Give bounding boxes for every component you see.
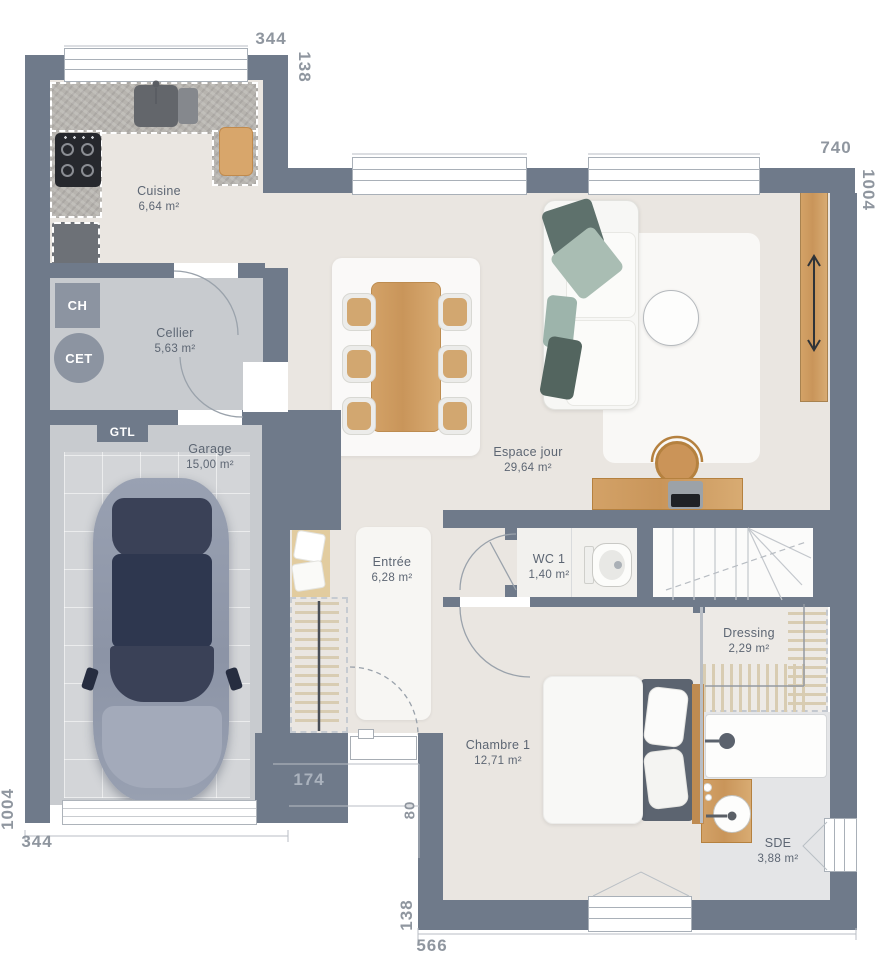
wall-wc-left-stub-top bbox=[505, 528, 517, 540]
window-living-1 bbox=[352, 157, 527, 195]
kitchen-sink bbox=[134, 85, 178, 127]
dim-left-height: 1004 bbox=[0, 788, 18, 830]
kitchen-sink-drainer bbox=[178, 88, 198, 124]
wall-stub-dressing bbox=[693, 602, 705, 613]
stove-burner bbox=[81, 164, 94, 177]
room-area: 15,00 m² bbox=[186, 458, 234, 474]
kitchen-stove bbox=[55, 133, 101, 187]
wall-garage-entree bbox=[262, 530, 290, 733]
wall-chambre-left bbox=[418, 733, 443, 903]
room-name: Espace jour bbox=[493, 444, 562, 461]
dining-chair bbox=[342, 397, 376, 435]
cutting-board bbox=[219, 127, 253, 176]
toilet-seat bbox=[599, 550, 625, 580]
window-kitchen bbox=[64, 48, 248, 82]
laptop-screen bbox=[671, 494, 700, 507]
room-name: WC 1 bbox=[528, 551, 569, 568]
bed-pillow bbox=[643, 686, 690, 748]
entry-cushion bbox=[293, 530, 327, 564]
room-label-entree: Entrée 6,28 m² bbox=[371, 554, 412, 586]
car-hood bbox=[102, 706, 222, 788]
room-label-chambre1: Chambre 1 12,71 m² bbox=[466, 737, 531, 769]
dining-table bbox=[371, 282, 441, 432]
gtl-electrical-box: GTL bbox=[97, 421, 148, 442]
front-door-handle bbox=[358, 729, 374, 739]
room-name: Garage bbox=[186, 441, 234, 458]
coffee-table bbox=[643, 290, 699, 346]
wall-wc-right bbox=[637, 528, 653, 597]
wall-tech-block bbox=[262, 410, 341, 530]
room-area: 2,29 m² bbox=[723, 642, 775, 658]
stove-knobs bbox=[61, 136, 95, 139]
stove-burner bbox=[61, 164, 74, 177]
room-name: Cuisine bbox=[137, 183, 181, 200]
room-label-sde: SDE 3,88 m² bbox=[757, 835, 798, 867]
closet-hangers bbox=[295, 602, 339, 728]
floor-stairs bbox=[653, 528, 813, 600]
dim-porch-depth: 80 bbox=[402, 801, 419, 820]
wall-hall-top bbox=[443, 510, 830, 528]
room-area: 5,63 m² bbox=[154, 342, 195, 358]
shower bbox=[705, 714, 827, 778]
cet-label: CET bbox=[65, 351, 93, 366]
room-label-wc1: WC 1 1,40 m² bbox=[528, 551, 569, 583]
room-area: 6,64 m² bbox=[137, 200, 181, 216]
room-name: Chambre 1 bbox=[466, 737, 531, 754]
dim-right-height: 1004 bbox=[858, 169, 878, 211]
bed-pillow bbox=[643, 748, 690, 810]
garage-door bbox=[62, 800, 257, 825]
door-opening-cellier-top bbox=[174, 263, 238, 278]
front-door-leaf bbox=[350, 736, 417, 760]
gtl-label: GTL bbox=[110, 425, 136, 439]
dining-chair bbox=[438, 345, 472, 383]
soap-dish bbox=[703, 783, 712, 792]
water-heater-ch-box: CH bbox=[55, 283, 100, 328]
room-label-garage: Garage 15,00 m² bbox=[186, 441, 234, 473]
dim-top-step-depth: 138 bbox=[294, 51, 314, 82]
glass-partition bbox=[700, 607, 703, 823]
dim-porch-width: 174 bbox=[293, 770, 324, 790]
car-windshield bbox=[110, 646, 214, 702]
water-heater-cet-tank: CET bbox=[54, 333, 104, 383]
room-label-cellier: Cellier 5,63 m² bbox=[154, 325, 195, 357]
dim-bottom-step-depth: 138 bbox=[397, 899, 417, 930]
room-label-dressing: Dressing 2,29 m² bbox=[723, 625, 775, 657]
door-opening-cellier-side bbox=[243, 362, 288, 412]
dim-bottom-left-width: 344 bbox=[21, 832, 52, 852]
kitchen-fridge bbox=[52, 222, 100, 268]
wall-shelf bbox=[800, 192, 828, 402]
dining-chair bbox=[342, 345, 376, 383]
dining-chair bbox=[438, 293, 472, 331]
bed-duvet bbox=[543, 676, 643, 824]
dining-chair bbox=[438, 397, 472, 435]
wall-stairs-right bbox=[813, 510, 830, 600]
wall-step bbox=[263, 80, 288, 193]
room-label-cuisine: Cuisine 6,64 m² bbox=[137, 183, 181, 215]
vanity-sink bbox=[713, 795, 751, 833]
window-living-2 bbox=[588, 157, 760, 195]
room-name: Cellier bbox=[154, 325, 195, 342]
room-name: Dressing bbox=[723, 625, 775, 642]
dim-bottom-main-width: 566 bbox=[416, 936, 447, 956]
wc-tile-line bbox=[571, 528, 572, 597]
room-label-espace-jour: Espace jour 29,64 m² bbox=[493, 444, 562, 476]
door-opening-chambre bbox=[460, 597, 530, 607]
wall-wc-left-stub-bottom bbox=[505, 585, 517, 597]
stove-burner bbox=[61, 143, 74, 156]
entry-cushion bbox=[291, 560, 326, 593]
car-rear-window bbox=[112, 498, 212, 558]
dim-top-left-width: 344 bbox=[255, 29, 286, 49]
room-area: 6,28 m² bbox=[371, 571, 412, 587]
car-roof bbox=[112, 554, 212, 648]
wall-left bbox=[25, 55, 50, 823]
room-name: SDE bbox=[757, 835, 798, 852]
dressing-rack-bottom bbox=[703, 664, 805, 712]
room-area: 12,71 m² bbox=[466, 754, 531, 770]
window-sde bbox=[824, 818, 857, 872]
window-chambre bbox=[588, 896, 692, 932]
stove-burner bbox=[81, 143, 94, 156]
room-area: 3,88 m² bbox=[757, 852, 798, 868]
dim-top-main-width: 740 bbox=[820, 138, 851, 158]
door-opening-cellier-garage bbox=[178, 410, 242, 425]
ch-label: CH bbox=[68, 298, 88, 313]
dining-chair bbox=[342, 293, 376, 331]
floor-plan: CH CET GTL bbox=[0, 0, 883, 960]
room-name: Entrée bbox=[371, 554, 412, 571]
soap-dish bbox=[705, 794, 712, 801]
room-area: 1,40 m² bbox=[528, 568, 569, 584]
room-area: 29,64 m² bbox=[493, 461, 562, 477]
